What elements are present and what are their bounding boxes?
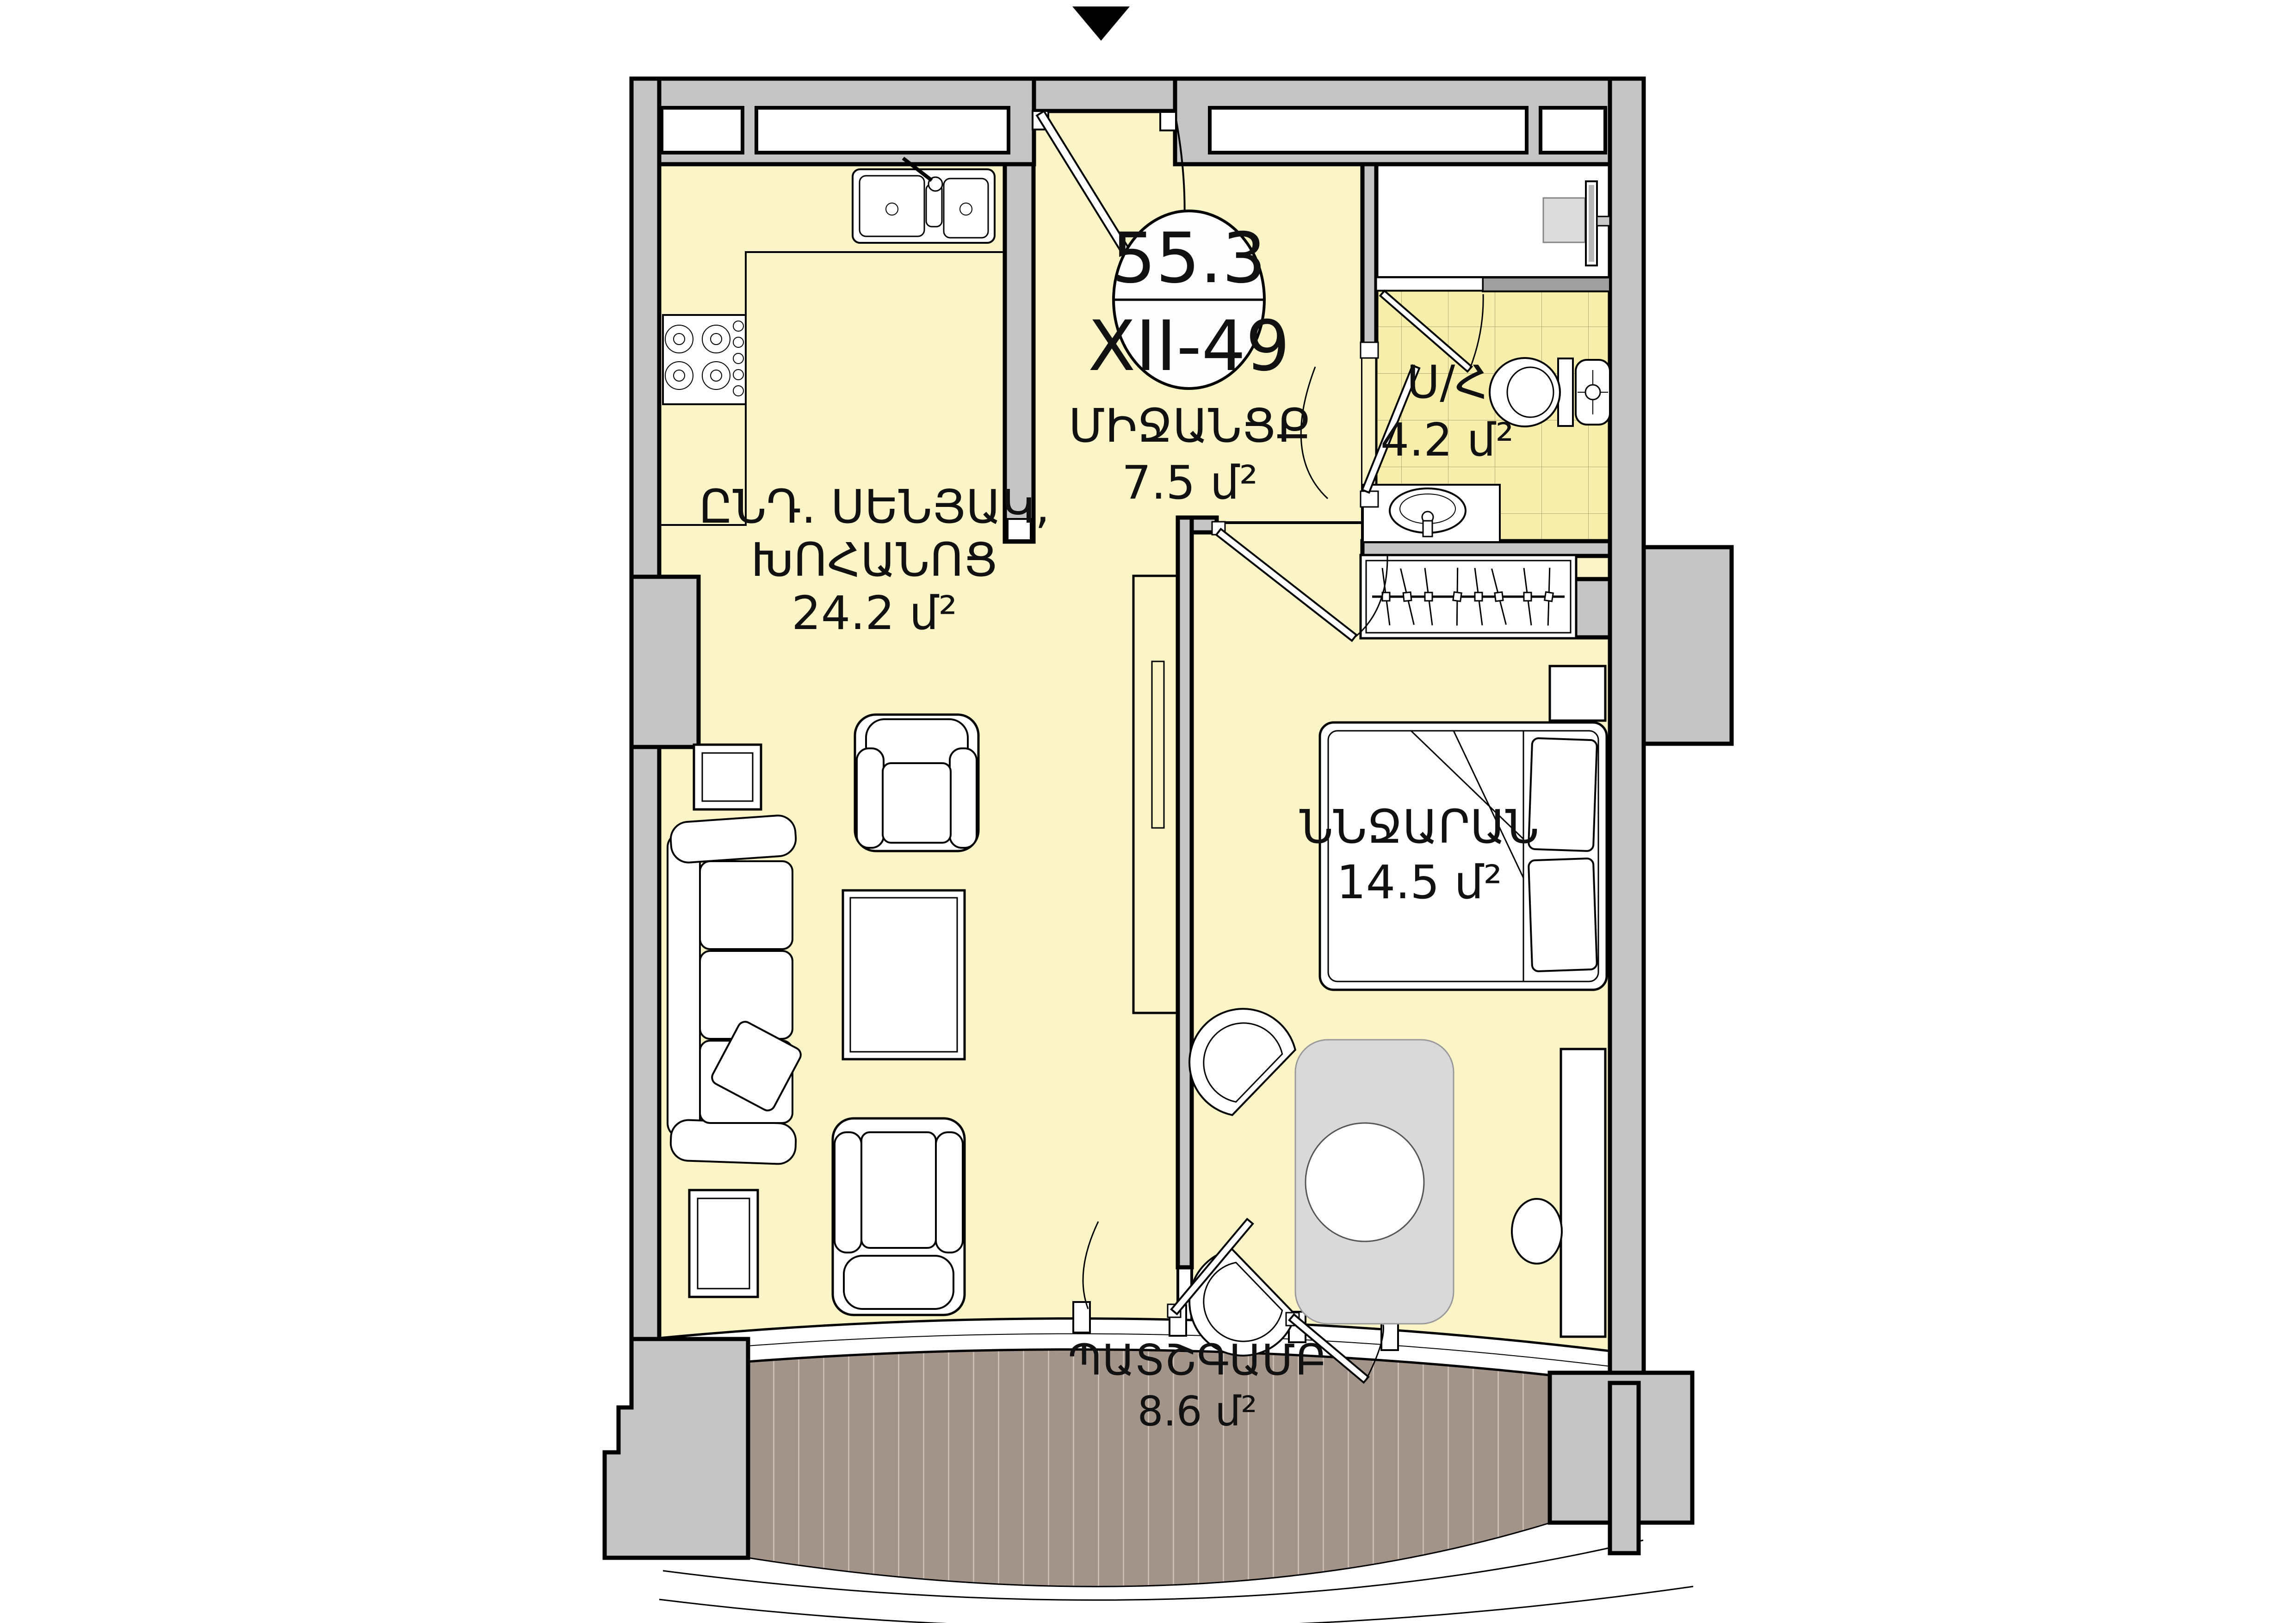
armchair-seat	[861, 1132, 936, 1248]
stove	[663, 315, 746, 404]
floor-plan-canvas: 55.3 XII-49 ՄԻՋԱՆՑՔ 7.5 մ² ԸՆԴ. ՍԵՆՅԱԿ, …	[0, 0, 2296, 1623]
room-label-bedroom: ՆՆՋԱՐԱՆ	[1300, 800, 1539, 854]
sofa-armrest	[669, 815, 797, 864]
window	[662, 108, 743, 153]
wardrobe	[1361, 555, 1576, 638]
shaft-unit-box	[1543, 198, 1585, 242]
bathroom-door-threshold	[1376, 278, 1483, 290]
nightstand	[1550, 666, 1605, 721]
door-jamb	[1160, 112, 1176, 130]
armchair-arm	[950, 748, 977, 848]
window	[756, 108, 1009, 153]
shaft-threshold-wall	[1483, 278, 1610, 291]
window	[1541, 108, 1605, 153]
room-area-balcony: 8.6 մ²	[1138, 1388, 1257, 1435]
sofa	[668, 815, 803, 1165]
armchair-back	[844, 1256, 953, 1309]
shaft-rail-bracket	[1597, 216, 1610, 226]
room-area-bedroom: 14.5 մ²	[1337, 855, 1502, 909]
sink-bowl-left	[860, 176, 924, 236]
room-label-hallway: ՄԻՋԱՆՑՔ	[1069, 399, 1312, 453]
bathroom-sink	[1363, 485, 1500, 542]
shaft-rail-inner	[1589, 185, 1594, 262]
coffee-table-top	[843, 890, 965, 1059]
room-label-living-line1: ԸՆԴ. ՍԵՆՅԱԿ,	[699, 480, 1050, 534]
unit-info-circle: 55.3 XII-49	[1088, 211, 1290, 389]
entry-lintel	[1034, 79, 1175, 111]
right-wall	[1610, 79, 1644, 1383]
sofa-cushion	[700, 861, 792, 949]
desk-chair	[1512, 1199, 1562, 1264]
door-jamb	[1361, 342, 1378, 358]
room-area-hallway: 7.5 մ²	[1122, 456, 1258, 510]
coffee-table	[843, 890, 965, 1059]
armchair-seat	[883, 763, 951, 843]
armchair-arm	[936, 1132, 963, 1253]
room-label-balcony: ՊԱՏՇԳԱՄԲ	[1068, 1335, 1327, 1385]
pillow	[1529, 858, 1597, 972]
armchair-arm	[835, 1132, 861, 1253]
sofa-armrest	[670, 1119, 797, 1164]
sink-tap-handle	[1423, 521, 1432, 537]
room-area-living: 24.2 մ²	[792, 586, 957, 640]
bottom-left-column	[605, 1339, 748, 1558]
left-wall-pilaster	[631, 577, 699, 747]
kitchen-sink	[853, 158, 995, 243]
room-label-living-line2: ԽՈՀԱՆՈՑ	[751, 533, 998, 587]
right-wall-pilaster	[1575, 579, 1610, 637]
right-wall-lower	[1610, 1383, 1639, 1553]
corner-basin-drain	[1585, 385, 1600, 400]
entrance-marker-icon	[1072, 6, 1130, 41]
side-table-bottom-outer	[689, 1190, 758, 1297]
sofa-back	[668, 833, 700, 1138]
unit-area-label: 55.3	[1112, 218, 1266, 299]
balcony-ground-line	[659, 1586, 1693, 1623]
sink-bowl-right	[944, 179, 988, 238]
side-table-bottom	[689, 1190, 758, 1297]
room-area-bathroom: 4.2 մ²	[1380, 414, 1514, 467]
armchair-bottom	[833, 1118, 965, 1315]
unit-number-label: XII-49	[1088, 306, 1290, 387]
room-label-bathroom: Ս/Հ	[1407, 356, 1488, 409]
desk-top	[1561, 1049, 1605, 1337]
right-wall-outer-column	[1644, 547, 1732, 744]
window	[1210, 108, 1527, 153]
side-table-top-outer	[694, 745, 761, 809]
table-top-round	[1306, 1123, 1424, 1241]
balcony-deck	[659, 1350, 1610, 1587]
bathroom-bottom-wall	[1362, 541, 1610, 556]
side-table-top	[694, 745, 761, 809]
hallway-bathroom-wall	[1362, 164, 1376, 356]
armchair-arm	[857, 748, 884, 848]
armchair-top	[855, 715, 978, 851]
living-bedroom-divider-wall	[1178, 518, 1192, 1267]
